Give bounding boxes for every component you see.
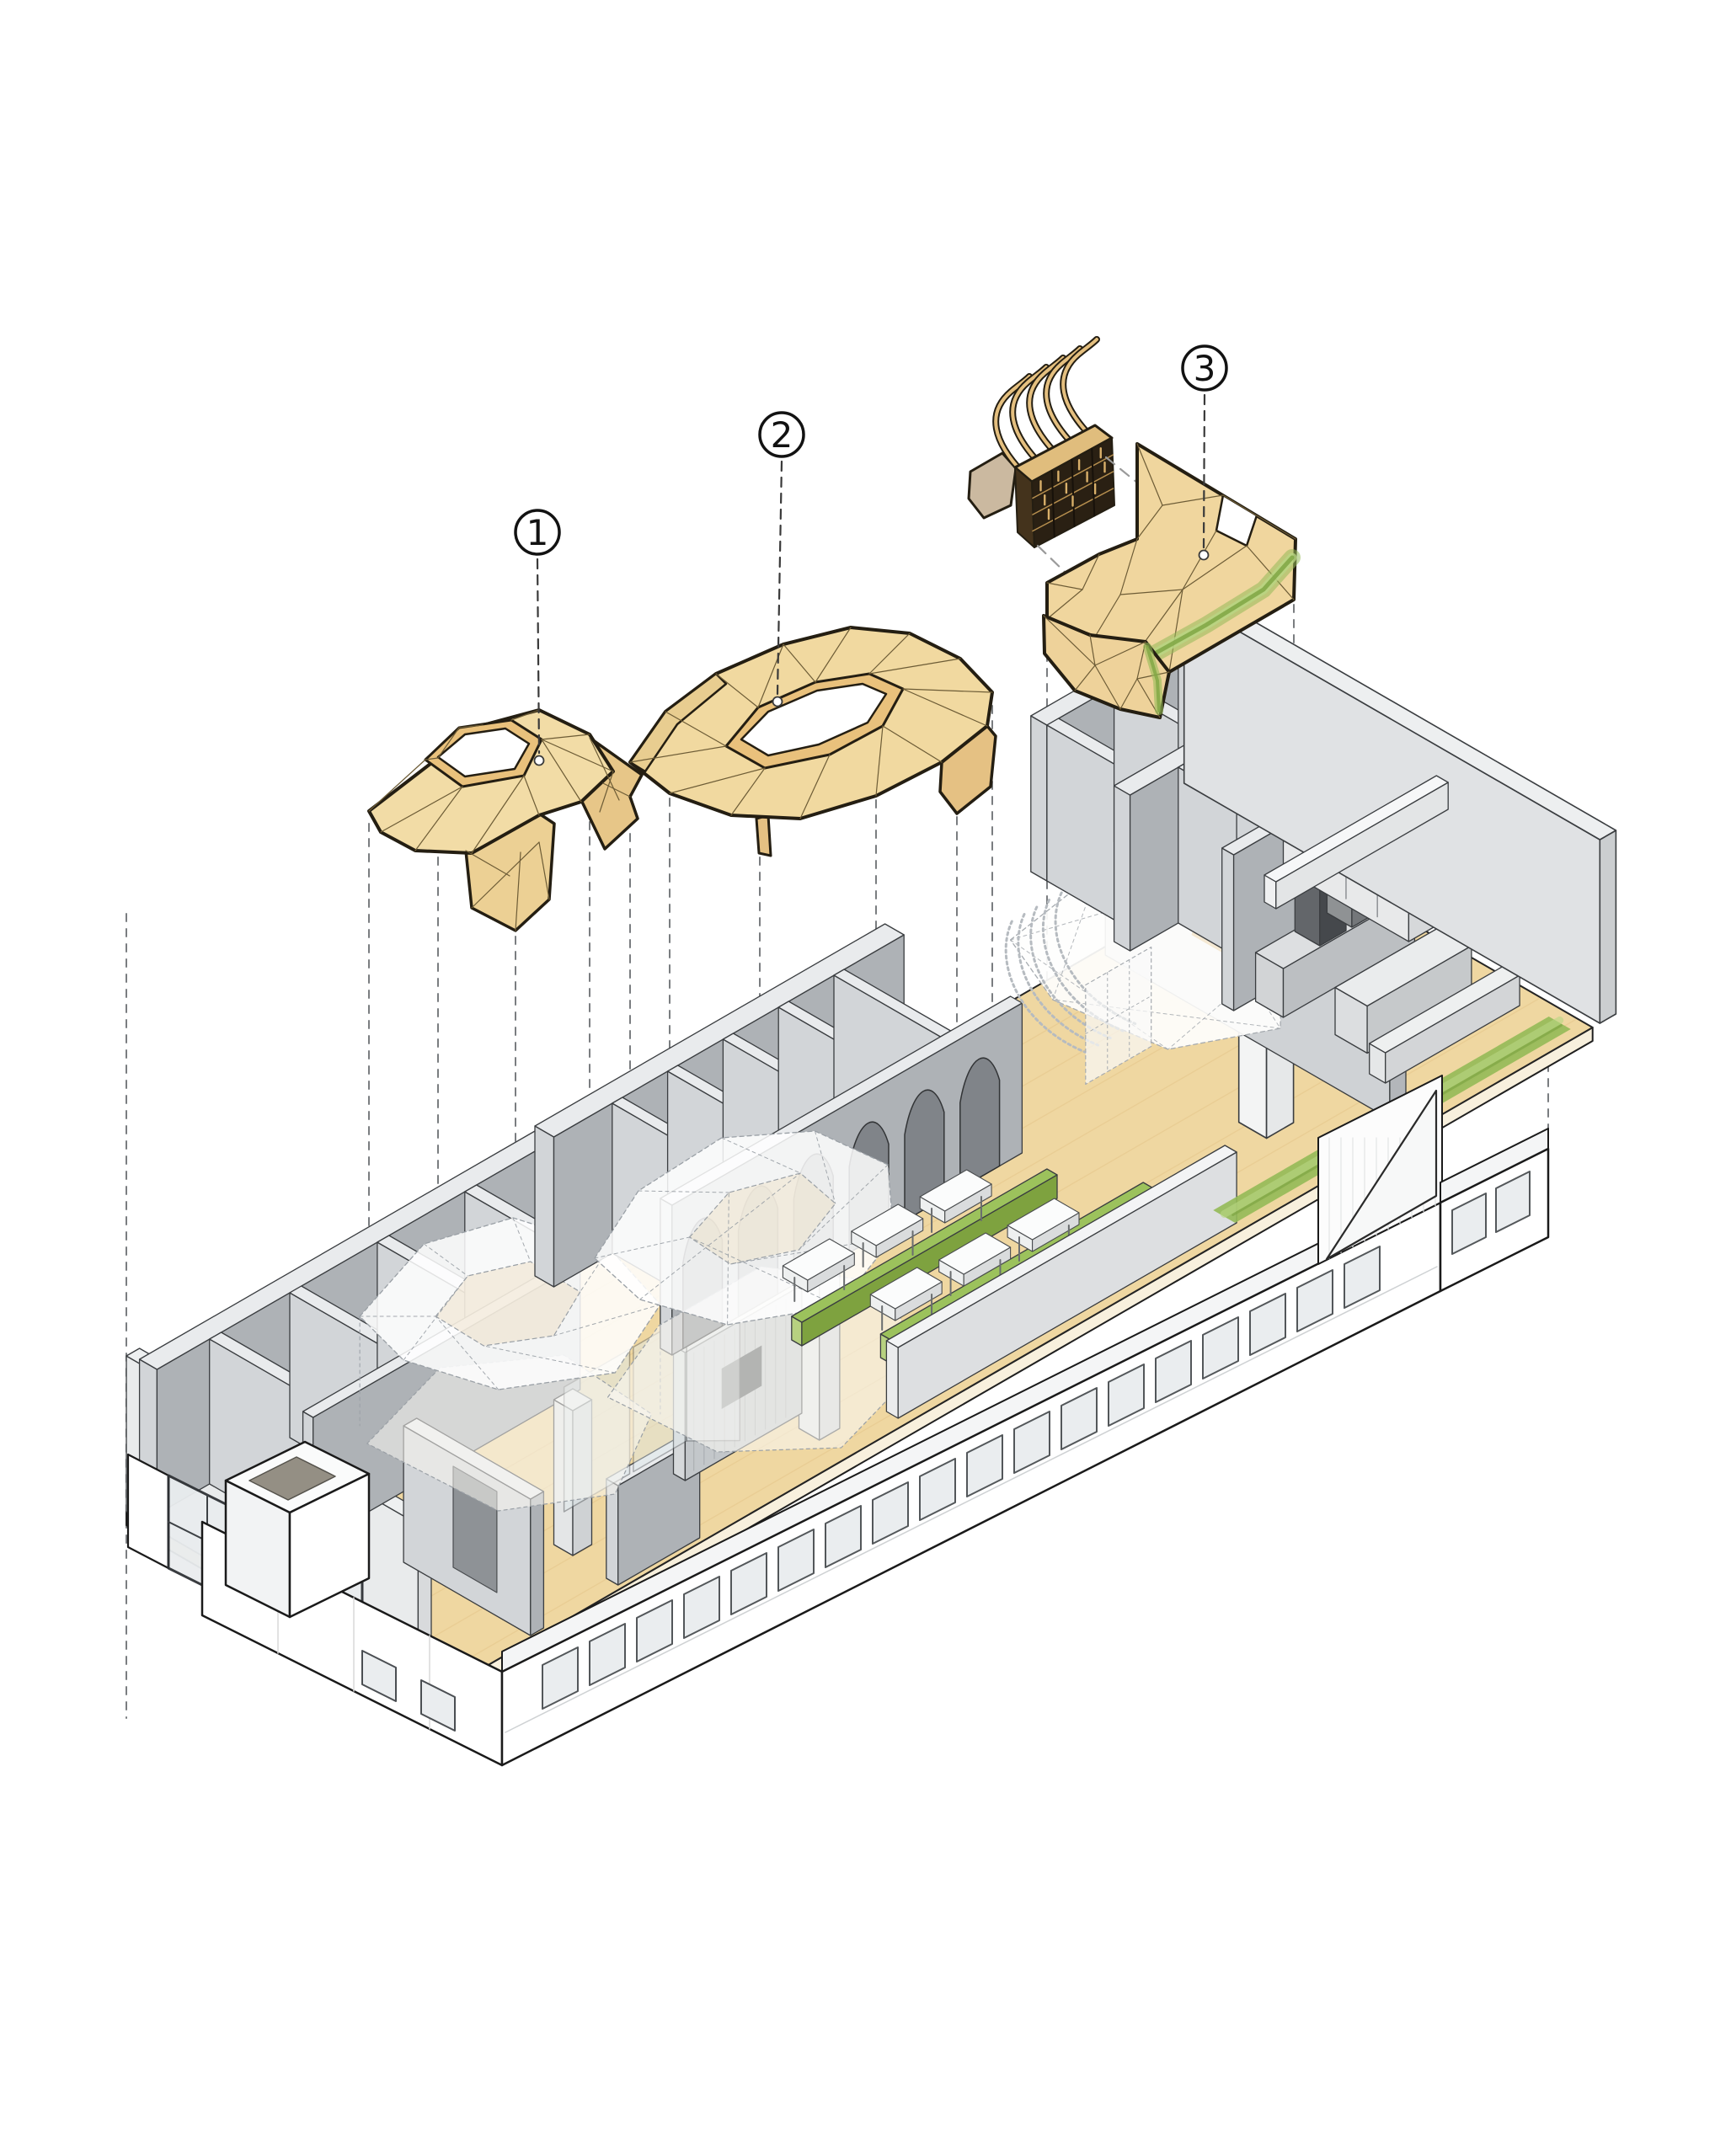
booth-arch-opening bbox=[960, 1058, 1000, 1188]
kitchen-corridor-wall-end-face bbox=[1222, 848, 1234, 1011]
back-wall-mid-end-face bbox=[535, 1126, 554, 1287]
front-wall-left-front-face bbox=[531, 1492, 544, 1636]
bookshelf-wall bbox=[969, 339, 1114, 547]
kitchen-back-wall-end-face bbox=[1114, 786, 1130, 951]
marker-label-1: 1 bbox=[526, 512, 549, 553]
cafe-low-wall-end-face bbox=[886, 1341, 898, 1418]
exploded-axonometric-diagram: 123 bbox=[0, 0, 1715, 2156]
marker-label-2: 2 bbox=[771, 414, 793, 456]
leader-line-3 bbox=[1204, 395, 1205, 547]
right-rooms-back-wall-end-face bbox=[1031, 716, 1047, 881]
ceiling-canopy-1 bbox=[369, 710, 642, 931]
ceiling-canopy-2 bbox=[630, 627, 996, 856]
bookshelf-canopy-scrap bbox=[969, 453, 1016, 518]
diagram-canvas: 123 bbox=[0, 0, 1715, 2156]
canopy2-spike bbox=[756, 815, 771, 856]
east-end-wall-front-face bbox=[1600, 830, 1616, 1023]
target-dot-3 bbox=[1199, 551, 1209, 560]
target-dot-1 bbox=[535, 756, 544, 766]
shell-left-sliver bbox=[128, 1454, 168, 1568]
target-dot-2 bbox=[773, 697, 783, 707]
marker-label-3: 3 bbox=[1194, 348, 1216, 389]
